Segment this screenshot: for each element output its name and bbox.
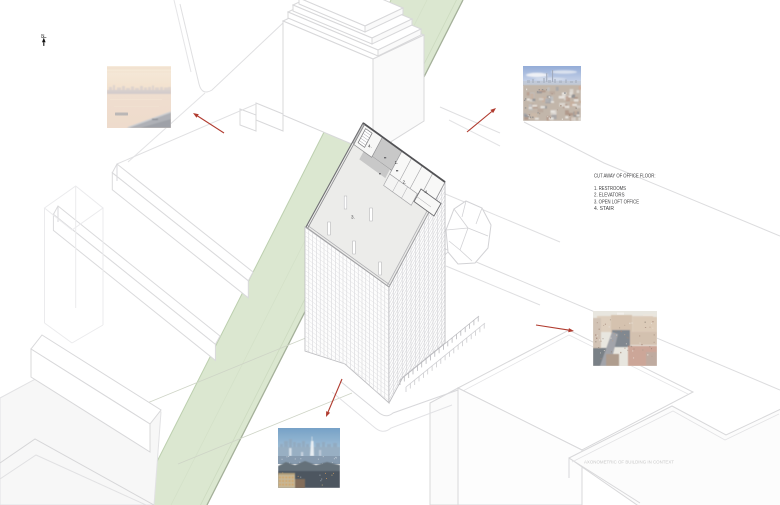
svg-text:N: N bbox=[41, 33, 44, 38]
svg-text:3.: 3. bbox=[351, 215, 355, 220]
svg-text:2.: 2. bbox=[403, 180, 407, 185]
svg-text:CUT AWAY OF OFFICE FLOOR:: CUT AWAY OF OFFICE FLOOR: bbox=[594, 174, 656, 180]
svg-text:2. ELEVATORS: 2. ELEVATORS bbox=[594, 193, 625, 199]
svg-text:1.: 1. bbox=[395, 160, 399, 165]
svg-text:4.: 4. bbox=[368, 144, 372, 149]
svg-text:4.: 4. bbox=[425, 190, 429, 195]
svg-text:3. OPEN LOFT OFFICE: 3. OPEN LOFT OFFICE bbox=[594, 199, 639, 205]
svg-text:1. RESTROOMS: 1. RESTROOMS bbox=[594, 186, 626, 192]
svg-text:AXONOMETRIC OF BUILDING IN CON: AXONOMETRIC OF BUILDING IN CONTEXT bbox=[584, 460, 674, 466]
svg-text:4. STAIR: 4. STAIR bbox=[594, 206, 614, 212]
